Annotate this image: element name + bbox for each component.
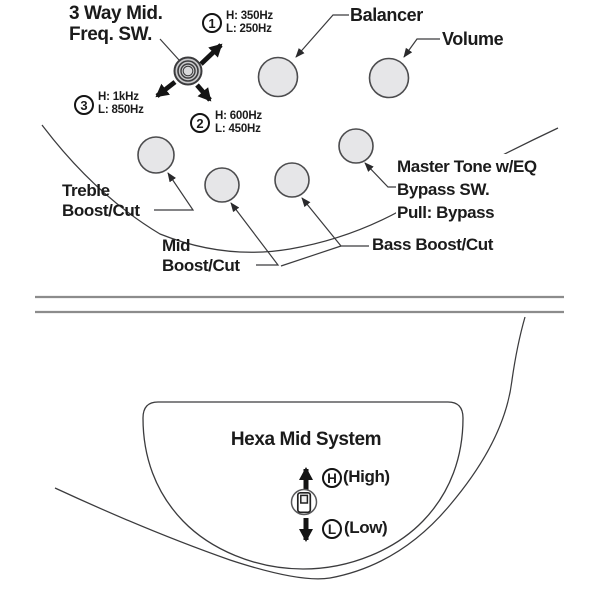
freq-position-1-values: H: 350Hz L: 250Hz xyxy=(226,10,273,35)
volume-label: Volume xyxy=(442,30,503,49)
freq-3-high: H: 1kHz xyxy=(98,91,144,104)
master-tone-label-line1: Master Tone w/EQ xyxy=(397,155,537,178)
master-tone-label: Master Tone w/EQ Bypass SW. Pull: Bypass xyxy=(396,154,540,225)
balancer-leader xyxy=(296,15,349,57)
freq-switch-leader xyxy=(160,39,179,60)
treble-label-line2: Boost/Cut xyxy=(62,201,140,221)
hexa-system-title: Hexa Mid System xyxy=(215,430,397,451)
mid-label: Mid Boost/Cut xyxy=(162,236,240,275)
low-letter-badge: L xyxy=(322,519,342,539)
control-layout-diagram: 3 Way Mid. Freq. SW. 1 H: 350Hz L: 250Hz… xyxy=(0,0,600,600)
master-tone-label-line2: Bypass SW. xyxy=(397,178,537,201)
treble-label-line1: Treble xyxy=(62,181,140,201)
master-tone-knob[interactable] xyxy=(339,129,373,163)
treble-leader xyxy=(154,173,193,210)
freq-1-low: L: 250Hz xyxy=(226,23,273,36)
freq-1-high: H: 350Hz xyxy=(226,10,273,23)
freq-2-low: L: 450Hz xyxy=(215,123,262,136)
balancer-label: Balancer xyxy=(350,6,423,25)
freq-position-2-badge: 2 xyxy=(190,113,210,133)
freq-2-high: H: 600Hz xyxy=(215,110,262,123)
treble-knob[interactable] xyxy=(138,137,174,173)
freq-position-2-values: H: 600Hz L: 450Hz xyxy=(215,110,262,135)
bass-leader xyxy=(302,198,369,246)
treble-label: Treble Boost/Cut xyxy=(62,181,140,220)
freq-switch-knob[interactable] xyxy=(175,58,202,85)
freq-position-1-badge: 1 xyxy=(202,13,222,33)
slide-switch-icon[interactable] xyxy=(292,490,317,515)
freq-arrow-down-left-icon xyxy=(157,82,175,96)
master-tone-leader xyxy=(365,163,397,187)
diagram-canvas xyxy=(0,0,600,600)
mid-label-line1: Mid xyxy=(162,236,240,256)
freq-arrow-down-right-icon xyxy=(197,85,210,100)
freq-switch-label-line1: 3 Way Mid. xyxy=(69,4,162,25)
mid-label-line2: Boost/Cut xyxy=(162,256,240,276)
freq-position-3-badge: 3 xyxy=(74,95,94,115)
volume-leader xyxy=(404,39,440,57)
high-label: (High) xyxy=(343,467,390,487)
bass-knob[interactable] xyxy=(275,163,309,197)
hexa-panel-outline xyxy=(143,402,463,569)
freq-switch-label-line2: Freq. SW. xyxy=(69,25,162,46)
volume-knob[interactable] xyxy=(370,59,409,98)
freq-switch-label: 3 Way Mid. Freq. SW. xyxy=(69,4,162,45)
freq-arrow-up-right-icon xyxy=(201,45,221,64)
master-tone-label-line3: Pull: Bypass xyxy=(397,201,537,224)
low-label: (Low) xyxy=(344,518,387,538)
freq-3-low: L: 850Hz xyxy=(98,104,144,117)
mid-knob[interactable] xyxy=(205,168,239,202)
freq-position-3-values: H: 1kHz L: 850Hz xyxy=(98,91,144,116)
high-letter-badge: H xyxy=(322,468,342,488)
balancer-knob[interactable] xyxy=(259,58,298,97)
bass-label: Bass Boost/Cut xyxy=(372,235,493,255)
